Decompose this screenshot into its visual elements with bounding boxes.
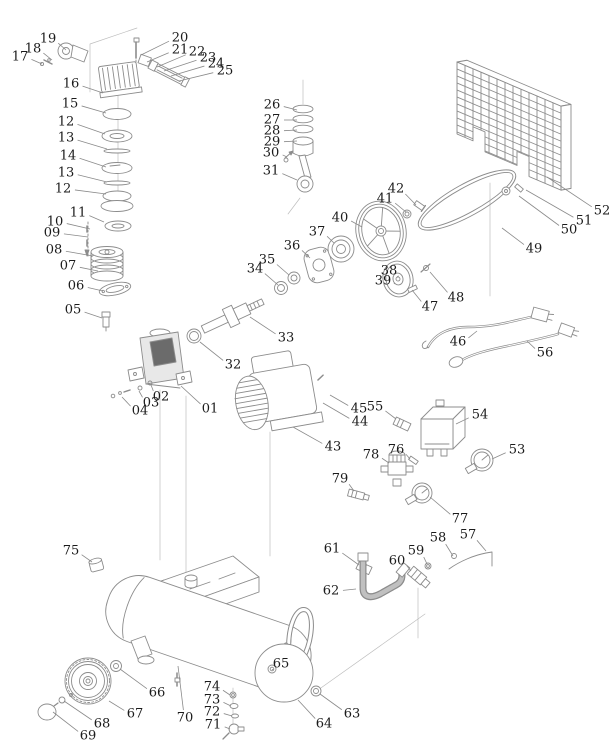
base-gasket <box>98 280 132 298</box>
parts-diagram-canvas: 1918172021222324251615121314131211100908… <box>0 0 615 755</box>
leader-line-35 <box>277 265 289 275</box>
part-label-32: 32 <box>225 358 242 373</box>
leader-line-20 <box>141 41 169 55</box>
part-label-15: 15 <box>62 97 79 112</box>
leader-line-57 <box>477 540 486 551</box>
part-label-70: 70 <box>177 711 194 726</box>
leader-line-58 <box>446 544 453 556</box>
part-label-78: 78 <box>363 448 380 463</box>
leader-line-46 <box>468 331 477 338</box>
part-label-45: 45 <box>351 402 368 417</box>
part-label-61: 61 <box>324 542 341 557</box>
leader-line-13 <box>78 175 107 182</box>
leader-line-16 <box>83 86 103 93</box>
pipe-nipple <box>347 489 369 501</box>
part-label-49: 49 <box>526 242 543 257</box>
leader-line-72 <box>224 714 232 716</box>
leader-line-05 <box>85 312 102 318</box>
part-label-08: 08 <box>46 243 63 258</box>
leader-line-11 <box>89 216 104 222</box>
leader-line-24 <box>171 66 204 76</box>
leader-line-32 <box>200 342 223 360</box>
part-label-76: 76 <box>388 443 405 458</box>
aftercooler-tube <box>148 60 190 87</box>
leader-line-56 <box>527 341 535 349</box>
leader-line-09 <box>64 234 88 237</box>
part-label-11: 11 <box>70 206 87 221</box>
leader-line-43 <box>293 427 322 443</box>
leader-line-51 <box>526 190 573 217</box>
vibration-pad <box>88 557 104 572</box>
part-label-46: 46 <box>450 335 467 350</box>
part-label-25: 25 <box>217 64 234 79</box>
part-label-30: 30 <box>263 146 280 161</box>
part-label-21: 21 <box>172 43 189 58</box>
part-label-06: 06 <box>68 279 85 294</box>
exploded-drawing <box>38 28 579 739</box>
leader-line-50 <box>519 196 559 226</box>
part-label-79: 79 <box>332 472 349 487</box>
power-cable-b <box>448 323 580 369</box>
leader-line-33 <box>250 317 276 334</box>
part-label-34: 34 <box>247 262 264 277</box>
part-label-60: 60 <box>389 554 406 569</box>
part-label-62: 62 <box>323 584 340 599</box>
part-label-19: 19 <box>40 32 57 47</box>
part-label-47: 47 <box>422 300 439 315</box>
part-label-09: 09 <box>44 226 61 241</box>
pressure-gauge-small <box>405 483 432 505</box>
part-label-16: 16 <box>63 77 80 92</box>
flywheel <box>350 196 411 265</box>
part-label-64: 64 <box>316 717 333 732</box>
leader-line-75 <box>82 555 92 562</box>
leader-line-01 <box>181 386 201 404</box>
part-label-53: 53 <box>509 443 526 458</box>
leader-line-31 <box>282 174 297 180</box>
crankshaft <box>199 293 267 339</box>
part-label-48: 48 <box>448 291 465 306</box>
part-label-40: 40 <box>332 211 349 226</box>
leader-line-73 <box>223 702 231 706</box>
valve-plate-stack <box>101 109 133 212</box>
leader-line-12 <box>77 124 105 134</box>
part-label-63: 63 <box>344 707 361 722</box>
part-label-59: 59 <box>408 544 425 559</box>
part-label-13: 13 <box>58 131 75 146</box>
part-label-33: 33 <box>278 331 295 346</box>
leader-line-13 <box>78 140 107 149</box>
leader-line-64 <box>298 700 315 719</box>
breather-fitting <box>102 312 110 331</box>
part-label-67: 67 <box>127 707 144 722</box>
part-label-14: 14 <box>60 149 77 164</box>
leader-line-04 <box>122 397 131 406</box>
leader-line-17 <box>31 59 42 64</box>
part-label-17: 17 <box>12 50 29 65</box>
part-label-57: 57 <box>460 528 477 543</box>
leader-line-12 <box>75 190 106 194</box>
part-label-12: 12 <box>58 115 75 130</box>
part-label-01: 01 <box>202 402 219 417</box>
part-label-31: 31 <box>263 164 280 179</box>
part-label-36: 36 <box>284 239 301 254</box>
belt-guard-grille <box>457 56 571 194</box>
part-label-56: 56 <box>537 346 554 361</box>
part-label-05: 05 <box>65 303 82 318</box>
part-label-42: 42 <box>388 182 405 197</box>
part-label-12: 12 <box>55 182 72 197</box>
leader-line-76 <box>406 454 410 459</box>
part-label-07: 07 <box>60 259 77 274</box>
part-label-55: 55 <box>367 400 384 415</box>
leader-line-45 <box>330 395 348 406</box>
leader-line-47 <box>412 290 421 302</box>
pressure-switch <box>421 400 465 456</box>
wheel-assembly <box>38 658 122 720</box>
part-label-69: 69 <box>80 729 97 744</box>
part-label-51: 51 <box>576 214 593 229</box>
part-label-71: 71 <box>205 718 222 733</box>
part-label-65: 65 <box>273 657 290 672</box>
leader-line-74 <box>223 690 230 695</box>
part-label-26: 26 <box>264 98 281 113</box>
electric-motor <box>228 346 331 437</box>
leader-line-69 <box>53 712 78 731</box>
part-label-44: 44 <box>352 415 369 430</box>
leader-line-55 <box>385 411 396 419</box>
leader-line-14 <box>80 158 106 167</box>
oil-seal <box>187 329 201 343</box>
leader-line-49 <box>502 228 524 245</box>
leader-line-39 <box>394 283 395 284</box>
leader-line-42 <box>405 194 416 205</box>
leader-line-70 <box>178 666 183 710</box>
leader-line-53 <box>492 453 506 459</box>
leader-line-30 <box>283 155 287 157</box>
leader-line-34 <box>265 274 278 285</box>
leader-line-08 <box>66 251 93 256</box>
leader-line-78 <box>382 458 389 463</box>
part-label-13: 13 <box>58 166 75 181</box>
part-label-39: 39 <box>375 274 392 289</box>
part-label-75: 75 <box>63 544 80 559</box>
power-cable-a <box>422 307 554 348</box>
pressure-gauge-large <box>465 449 493 474</box>
leader-line-66 <box>120 669 147 689</box>
grille-screws <box>502 184 523 195</box>
part-label-52: 52 <box>594 204 611 219</box>
cylinder <box>91 247 123 282</box>
part-label-66: 66 <box>149 686 166 701</box>
leader-line-77 <box>430 497 450 514</box>
leader-line-44 <box>323 403 349 418</box>
leader-line-61 <box>342 553 359 565</box>
leader-line-62 <box>343 589 356 590</box>
part-label-77: 77 <box>452 512 469 527</box>
drive-belt <box>411 159 523 240</box>
piston-group <box>284 105 313 192</box>
part-label-58: 58 <box>430 531 447 546</box>
cylinder-head <box>96 61 142 98</box>
leader-line-15 <box>82 106 106 113</box>
leader-line-67 <box>109 701 124 710</box>
part-label-04: 04 <box>132 404 149 419</box>
part-label-43: 43 <box>325 440 342 455</box>
part-label-37: 37 <box>309 225 326 240</box>
leader-line-48 <box>430 272 448 292</box>
part-label-54: 54 <box>472 408 489 423</box>
leader-line-63 <box>320 694 342 710</box>
